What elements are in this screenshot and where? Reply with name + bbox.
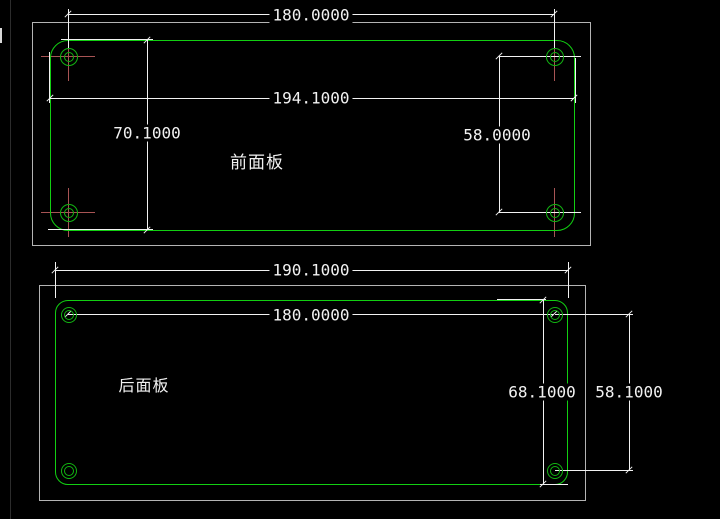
mounting-hole-inner xyxy=(64,208,74,218)
mounting-hole-inner xyxy=(64,466,74,476)
dim-extension-line xyxy=(499,212,581,213)
front-panel-label[interactable]: 前面板 xyxy=(230,154,284,172)
dim-text-overall-width[interactable]: 194.1000 xyxy=(269,90,352,107)
dim-extension-line xyxy=(540,484,568,485)
mounting-hole-inner xyxy=(64,52,74,62)
dim-extension-line xyxy=(49,52,50,103)
dim-text-hole-spacing-height[interactable]: 58.0000 xyxy=(460,127,533,144)
dim-text-overall-height[interactable]: 70.1000 xyxy=(110,125,183,142)
dim-extension-line xyxy=(61,39,153,40)
edge-artifact xyxy=(0,28,2,43)
mounting-hole-inner xyxy=(550,208,560,218)
dim-text-hole-spacing-height[interactable]: 58.1000 xyxy=(592,384,665,401)
mounting-hole-inner xyxy=(64,310,74,320)
dim-text-overall-height[interactable]: 68.1000 xyxy=(505,384,578,401)
dim-extension-line xyxy=(48,229,153,230)
mounting-hole-inner xyxy=(550,310,560,320)
mounting-hole-inner xyxy=(550,52,560,62)
rear-panel-label[interactable]: 后面板 xyxy=(118,377,169,395)
dim-extension-line xyxy=(497,299,546,300)
dim-text-hole-spacing-width[interactable]: 180.0000 xyxy=(269,7,352,24)
dim-extension-line xyxy=(555,314,633,315)
dim-extension-line xyxy=(499,56,581,57)
dim-extension-line xyxy=(68,9,69,49)
dim-extension-line xyxy=(554,9,555,49)
drawing-area-left-border xyxy=(10,0,11,519)
dim-extension-line xyxy=(555,470,633,471)
mounting-hole-inner xyxy=(550,466,560,476)
dim-text-overall-width[interactable]: 190.1000 xyxy=(269,262,352,279)
dim-text-hole-spacing-width[interactable]: 180.0000 xyxy=(269,307,352,324)
cad-canvas[interactable]: 180.0000 194.1000 70.1000 58.0000 前面板 19… xyxy=(0,0,720,519)
